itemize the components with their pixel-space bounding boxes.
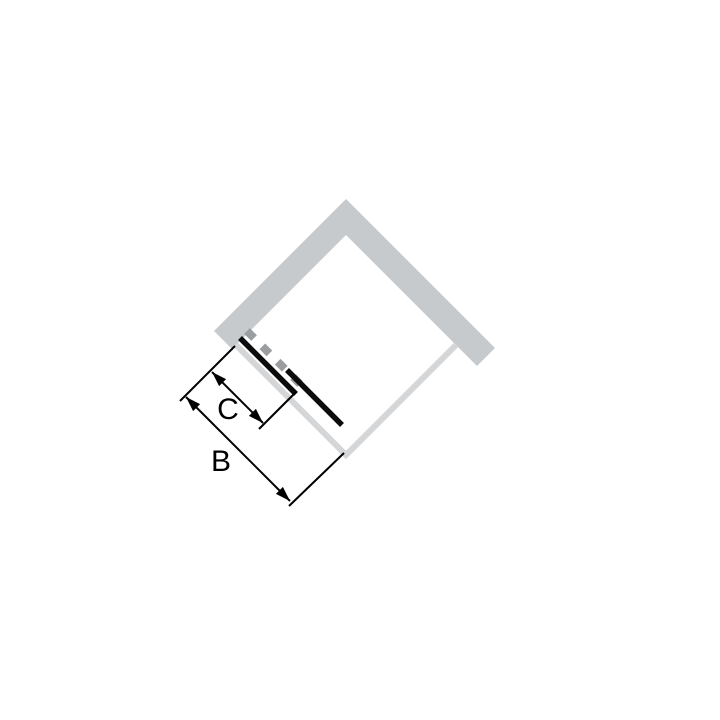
sliding-door-panel xyxy=(287,370,342,425)
dimension-label-c: C xyxy=(217,393,239,426)
dimension-c: C xyxy=(212,372,263,426)
dimension-label-b: B xyxy=(211,445,231,478)
corner-walls xyxy=(214,199,495,366)
shower-enclosure-diagram: C B xyxy=(0,0,720,720)
extension-line-door-end xyxy=(259,392,296,429)
diagram-svg: C B xyxy=(0,0,720,720)
tray-edge xyxy=(236,345,456,455)
extension-line-tray-corner xyxy=(289,453,344,506)
